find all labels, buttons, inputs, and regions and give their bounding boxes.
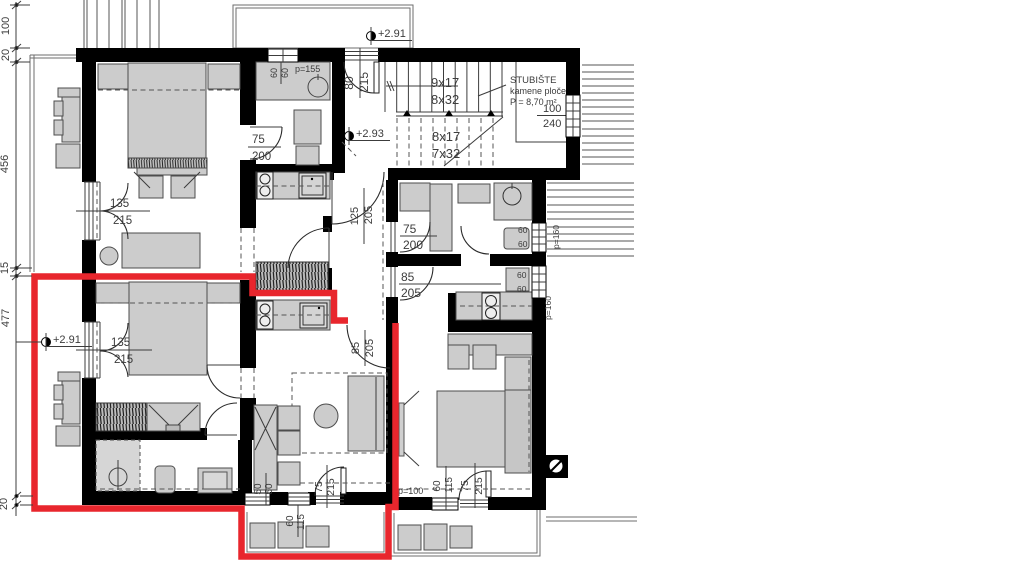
svg-text:+2.93: +2.93 (356, 128, 384, 140)
svg-text:p=160: p=160 (551, 225, 561, 249)
svg-text:115: 115 (444, 477, 455, 493)
svg-text:60: 60 (432, 480, 443, 492)
svg-text:9x17: 9x17 (431, 75, 459, 90)
svg-text:60: 60 (518, 225, 528, 235)
svg-text:60: 60 (280, 68, 290, 78)
svg-text:100: 100 (543, 103, 561, 115)
svg-text:p=160: p=160 (543, 296, 553, 320)
svg-text:8x32: 8x32 (431, 92, 459, 107)
svg-text:7x32: 7x32 (432, 146, 460, 161)
svg-text:75: 75 (403, 222, 417, 236)
svg-text:215: 215 (113, 215, 132, 227)
svg-text:205: 205 (363, 206, 375, 224)
svg-text:60: 60 (269, 68, 279, 78)
svg-text:85: 85 (350, 342, 362, 354)
svg-text:p=100: p=100 (398, 486, 423, 496)
svg-text:85: 85 (401, 270, 415, 284)
svg-text:215: 215 (325, 478, 337, 496)
svg-text:75: 75 (459, 480, 471, 492)
svg-text:80: 80 (342, 76, 356, 90)
svg-text:p=155: p=155 (295, 64, 320, 74)
svg-text:200: 200 (252, 151, 271, 163)
svg-text:60: 60 (517, 284, 527, 294)
svg-text:240: 240 (543, 118, 561, 130)
svg-text:115: 115 (296, 514, 307, 530)
svg-text:125: 125 (349, 207, 361, 225)
svg-text:205: 205 (364, 339, 376, 357)
svg-text:215: 215 (473, 477, 485, 495)
svg-text:60: 60 (518, 239, 528, 249)
svg-text:456: 456 (0, 155, 11, 173)
svg-text:15: 15 (0, 262, 11, 274)
svg-text:20: 20 (0, 49, 12, 61)
svg-text:50: 50 (264, 483, 275, 495)
svg-text:20: 20 (0, 498, 10, 510)
svg-text:205: 205 (401, 286, 421, 300)
svg-text:+2.91: +2.91 (53, 334, 81, 346)
svg-text:8x17: 8x17 (432, 129, 460, 144)
svg-text:60: 60 (517, 270, 527, 280)
svg-text:kamene ploče: kamene ploče (510, 86, 566, 96)
svg-text:+2.91: +2.91 (378, 28, 406, 40)
svg-text:135: 135 (111, 337, 130, 349)
svg-text:75: 75 (252, 134, 265, 146)
svg-text:100: 100 (0, 17, 12, 35)
svg-text:STUBIŠTE: STUBIŠTE (510, 75, 556, 86)
svg-text:50: 50 (253, 483, 264, 495)
svg-text:477: 477 (0, 309, 12, 327)
svg-text:200: 200 (403, 238, 423, 252)
svg-text:60: 60 (285, 515, 296, 527)
svg-text:135: 135 (110, 198, 129, 210)
svg-text:215: 215 (357, 72, 371, 92)
svg-text:215: 215 (114, 354, 133, 366)
